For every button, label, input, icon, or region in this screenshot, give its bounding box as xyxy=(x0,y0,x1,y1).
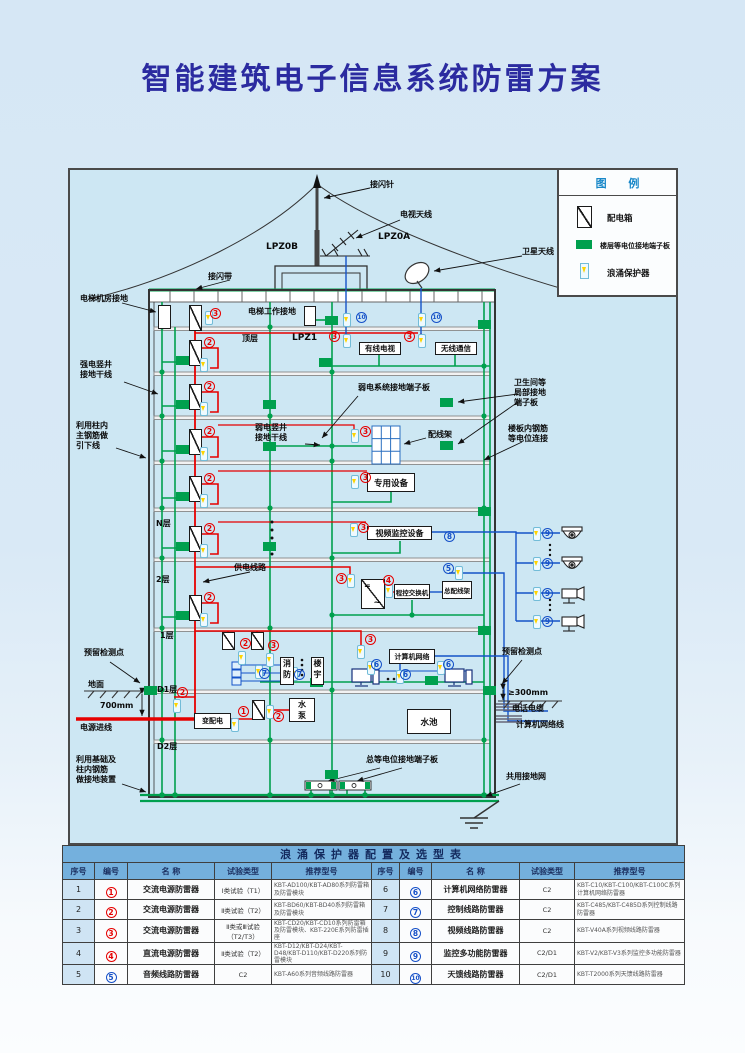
tv-antenna-icon xyxy=(320,230,370,256)
cell-num: 2 xyxy=(95,900,128,920)
label-ground-surface: 地面 xyxy=(88,680,104,690)
lpz-protection-curves xyxy=(90,184,588,299)
legend-item-label: 配电箱 xyxy=(607,212,633,224)
col-header: 序号 xyxy=(63,863,95,880)
label-elevator-work-ground: 电梯工作接地 xyxy=(248,307,296,317)
box-video-surveillance: 视频监控设备 xyxy=(367,526,432,540)
cell-no: 2 xyxy=(63,900,95,920)
cell-no: 8 xyxy=(372,920,400,943)
label-floor-d1: D1层 xyxy=(157,685,177,695)
label-weak-shaft: 弱电竖井 接地干线 xyxy=(255,423,287,443)
equipotential-board-icon xyxy=(263,542,276,551)
cell-name: 直流电源防雷器 xyxy=(128,942,215,965)
surge-protector-icon xyxy=(200,494,208,508)
equipotential-board-icon xyxy=(176,356,189,365)
label-foundation-ground: 利用基础及 柱内钢筋 做接地装置 xyxy=(76,755,116,785)
spd-number-badge: 2 xyxy=(273,711,284,722)
spd-selection-table: 浪涌保护器配置及选型表 序号 编号 名 称 试验类型 推荐型号 序号 编号 名 … xyxy=(62,845,685,985)
surge-protector-icon xyxy=(200,358,208,372)
box-camera-icon xyxy=(562,615,584,631)
label-floor-n: N层 xyxy=(156,519,171,529)
label-lpz0a: LPZ0A xyxy=(378,232,410,243)
col-header: 试验类型 xyxy=(520,863,575,880)
cell-type: C2 xyxy=(215,965,272,985)
col-header: 推荐型号 xyxy=(575,863,685,880)
table-title-row: 浪涌保护器配置及选型表 xyxy=(63,846,685,863)
spd-number-badge: 2 xyxy=(240,638,251,649)
cell-no: 7 xyxy=(372,900,400,920)
air-termination-belt xyxy=(149,290,495,302)
spd-number-badge: 10 xyxy=(431,312,442,323)
test-point-board-icon xyxy=(483,686,496,695)
power-lines xyxy=(76,320,421,719)
box-water-pump: 水 泵 xyxy=(289,698,315,722)
spd-number-badge: 7 xyxy=(259,668,270,679)
spd-number-badge: 9 xyxy=(542,588,553,599)
cell-num: 1 xyxy=(95,880,128,900)
cell-type: Ⅱ类试验（T2） xyxy=(215,942,272,965)
spd-number-badge: 3 xyxy=(336,573,347,584)
cell-name: 天馈线路防雷器 xyxy=(432,965,520,985)
cell-model: KBT-T2000系列天馈线路防雷器 xyxy=(575,965,685,985)
cell-type: C2 xyxy=(520,880,575,900)
table-title: 浪涌保护器配置及选型表 xyxy=(63,846,685,863)
label-top-floor: 顶层 xyxy=(242,334,258,344)
cell-model: KBT-V2/KBT-V3系列监控多功能防雷器 xyxy=(575,942,685,965)
equipotential-board-icon xyxy=(263,442,276,451)
cell-no: 4 xyxy=(63,942,95,965)
label-network-cable: 计算机网络线 xyxy=(516,720,564,730)
equipotential-board-icon xyxy=(176,445,189,454)
label-dim-700: 700mm xyxy=(100,701,133,711)
elevator-work-ground-box xyxy=(304,306,316,326)
col-header: 名 称 xyxy=(128,863,215,880)
label-common-ground-net: 共用接地网 xyxy=(506,772,546,782)
cell-num: 8 xyxy=(400,920,432,943)
label-lpz1: LPZ1 xyxy=(292,333,317,344)
equipotential-board-icon xyxy=(263,400,276,409)
cell-num: 5 xyxy=(95,965,128,985)
legend-item-label: 楼层等电位接地端子板 xyxy=(600,241,670,251)
cell-name: 控制线路防雷器 xyxy=(432,900,520,920)
surge-protector-icon xyxy=(343,313,351,327)
surge-protector-icon xyxy=(418,313,426,327)
cell-no: 10 xyxy=(372,965,400,985)
table-row: 5 5 音频线路防雷器 C2 KBT-A60系列音频线路防雷器 10 10 天馈… xyxy=(63,965,685,985)
cell-type: C2 xyxy=(520,900,575,920)
label-slab-rebar: 楼板内钢筋 等电位连接 xyxy=(508,424,548,444)
cell-type: Ⅰ类试验（T1） xyxy=(215,880,272,900)
equipotential-board-icon xyxy=(478,626,491,635)
label-reserved-test-right: 预留检测点 xyxy=(502,647,542,657)
surge-protector-icon xyxy=(266,653,274,667)
circled-number: 2 xyxy=(106,907,117,918)
spd-number-badge: 2 xyxy=(204,337,215,348)
equipotential-board-icon xyxy=(176,492,189,501)
cell-model: KBT-CD20/KBT-CD10系列防雷箱及防雷模块、KBT-220E系列防雷… xyxy=(272,920,372,943)
dome-camera-icon xyxy=(562,527,582,539)
spd-number-badge: 2 xyxy=(204,426,215,437)
page-title: 智能建筑电子信息系统防雷方案 xyxy=(0,54,745,98)
circled-number: 4 xyxy=(106,951,117,962)
earth-symbol xyxy=(460,801,499,828)
box-transformer: 变配电 xyxy=(194,713,231,729)
circled-number: 1 xyxy=(106,887,117,898)
surge-protector-icon xyxy=(351,475,359,489)
circled-number: 10 xyxy=(410,973,421,984)
box-special-equipment: 专用设备 xyxy=(367,473,415,492)
cell-no: 5 xyxy=(63,965,95,985)
penthouse xyxy=(275,266,367,290)
rectifier-converter-icon: = ~ xyxy=(361,579,385,609)
spd-number-badge: 2 xyxy=(204,473,215,484)
cell-model: KBT-AD100/KBT-AD80系列防雷箱及防雷模块 xyxy=(272,880,372,900)
surge-protector-icon xyxy=(533,557,541,571)
cell-name: 监控多功能防雷器 xyxy=(432,942,520,965)
label-lpz0b: LPZ0B xyxy=(266,242,298,253)
cell-num: 6 xyxy=(400,880,432,900)
spd-number-badge: 6 xyxy=(443,659,454,670)
cell-name: 计算机网络防雷器 xyxy=(432,880,520,900)
spd-number-badge: 3 xyxy=(210,308,221,319)
surge-protector-icon xyxy=(200,613,208,627)
equipotential-board-icon xyxy=(176,400,189,409)
label-tv-antenna: 电视天线 xyxy=(400,210,432,220)
label-dim-300: ≥300mm xyxy=(508,688,548,698)
converter-ac-glyph: ~ xyxy=(373,598,381,608)
equipotential-board-icon xyxy=(576,240,592,249)
col-header: 推荐型号 xyxy=(272,863,372,880)
table-row: 2 2 交流电源防雷器 Ⅱ类试验（T2） KBT-BD60/KBT-BD40系列… xyxy=(63,900,685,920)
diagram-panel: 图 例 配电箱 楼层等电位接地端子板 浪涌保护器 接闪针 电视天线 LPZ0A … xyxy=(68,168,678,845)
equipotential-board-icon xyxy=(478,320,491,329)
cell-model: KBT-BD60/KBT-BD40系列防雷箱及防雷模块 xyxy=(272,900,372,920)
cell-no: 1 xyxy=(63,880,95,900)
label-column-rebar: 利用柱内 主钢筋做 引下线 xyxy=(76,421,108,451)
cell-num: 3 xyxy=(95,920,128,943)
table-row: 1 1 交流电源防雷器 Ⅰ类试验（T1） KBT-AD100/KBT-AD80系… xyxy=(63,880,685,900)
circled-number: 6 xyxy=(410,887,421,898)
label-elevator-room-ground: 电梯机房接地 xyxy=(80,294,128,304)
surge-protector-icon xyxy=(200,447,208,461)
label-air-belt: 接闪带 xyxy=(208,272,232,282)
spd-number-badge: 3 xyxy=(365,634,376,645)
cell-name: 交流电源防雷器 xyxy=(128,920,215,943)
spd-number-badge: 3 xyxy=(268,640,279,651)
wiring-frame-icon xyxy=(372,426,400,464)
label-floor-d2: D2层 xyxy=(157,742,177,752)
surge-protector-icon xyxy=(418,334,426,348)
surge-protector-icon xyxy=(455,566,463,580)
spd-number-badge: 3 xyxy=(404,331,415,342)
cell-no: 3 xyxy=(63,920,95,943)
cell-type: C2/D1 xyxy=(520,942,575,965)
circled-number: 5 xyxy=(106,972,117,983)
cell-no: 9 xyxy=(372,942,400,965)
label-reserved-test-left: 预留检测点 xyxy=(84,648,124,658)
circled-number: 8 xyxy=(410,928,421,939)
converter-dc-glyph: = xyxy=(364,581,371,590)
distribution-box-icon xyxy=(577,206,592,228)
label-floor-2: 2层 xyxy=(156,575,170,585)
cell-name: 视频线路防雷器 xyxy=(432,920,520,943)
computer-icon xyxy=(445,669,472,686)
cell-no: 6 xyxy=(372,880,400,900)
surge-protector-icon xyxy=(343,334,351,348)
circled-number: 3 xyxy=(106,928,117,939)
cell-type: Ⅱ类或Ⅲ试验（T2/T3） xyxy=(215,920,272,943)
equipotential-board-icon xyxy=(325,770,338,779)
spd-number-badge: 1 xyxy=(238,706,249,717)
surge-protector-icon xyxy=(357,645,365,659)
legend: 图 例 配电箱 楼层等电位接地端子板 浪涌保护器 xyxy=(557,170,678,297)
cell-num: 7 xyxy=(400,900,432,920)
spd-number-badge: 2 xyxy=(204,381,215,392)
cell-type: C2 xyxy=(520,920,575,943)
equipotential-board-icon xyxy=(319,358,332,367)
col-header: 试验类型 xyxy=(215,863,272,880)
toilet-local-board-icon xyxy=(440,441,453,450)
air-terminal-rod xyxy=(313,174,321,266)
test-point-board-icon xyxy=(144,686,157,695)
spd-number-badge: 6 xyxy=(400,669,411,680)
cell-num: 4 xyxy=(95,942,128,965)
label-wiring-frame: 配线架 xyxy=(428,430,452,440)
equipotential-board-icon xyxy=(176,611,189,620)
distribution-box-icon xyxy=(251,632,264,650)
surge-protector-icon xyxy=(351,429,359,443)
spd-number-badge: 9 xyxy=(542,528,553,539)
cell-model: KBT-C485/KBT-C485D系列控制线路防雷器 xyxy=(575,900,685,920)
distribution-box-icon xyxy=(222,632,235,650)
box-computer-network: 计算机网络 xyxy=(389,649,435,664)
col-header: 名 称 xyxy=(432,863,520,880)
surge-protector-icon xyxy=(200,402,208,416)
label-weak-system-board: 弱电系统接地端子板 xyxy=(358,383,430,393)
cell-model: KBT-A60系列音频线路防雷器 xyxy=(272,965,372,985)
cell-model: KBT-V40A系列视频线路防雷器 xyxy=(575,920,685,943)
main-equipotential-bars xyxy=(305,781,371,790)
surge-protector-icon xyxy=(347,574,355,588)
box-pbx: 程控交换机 xyxy=(394,584,430,599)
col-header: 编号 xyxy=(400,863,432,880)
spd-number-badge: 4 xyxy=(383,575,394,586)
spd-number-badge: 9 xyxy=(542,558,553,569)
label-air-terminal: 接闪针 xyxy=(370,180,394,190)
surge-protector-icon xyxy=(533,615,541,629)
cell-model: KBT-D12/KBT-D24/KBT-D48/KBT-D110/KBT-D22… xyxy=(272,942,372,965)
surge-protector-icon xyxy=(350,523,358,537)
spd-number-badge: 2 xyxy=(204,592,215,603)
page: { "page": { "title": "智能建筑电子信息系统防雷方案" },… xyxy=(0,0,745,1053)
label-power-supply-line: 供电线路 xyxy=(234,563,266,573)
surge-protector-icon xyxy=(238,651,246,665)
distribution-box-icon xyxy=(252,700,265,720)
spd-number-badge: 3 xyxy=(360,472,371,483)
cell-type: C2/D1 xyxy=(520,965,575,985)
toilet-local-board-icon xyxy=(440,398,453,407)
surge-protector-icon xyxy=(533,587,541,601)
surge-protector-icon xyxy=(385,584,393,598)
label-main-equipotential: 总等电位接地端子板 xyxy=(366,755,438,765)
label-satellite-antenna: 卫星天线 xyxy=(522,247,554,257)
spd-number-badge: 2 xyxy=(177,687,188,698)
col-header: 编号 xyxy=(95,863,128,880)
distribution-box-icon xyxy=(189,305,202,331)
spd-number-badge: 3 xyxy=(329,331,340,342)
table-row: 4 4 直流电源防雷器 Ⅱ类试验（T2） KBT-D12/KBT-D24/KBT… xyxy=(63,942,685,965)
cell-num: 10 xyxy=(400,965,432,985)
spd-number-badge: 8 xyxy=(444,531,455,542)
circled-number: 7 xyxy=(410,907,421,918)
surge-protector-icon xyxy=(173,699,181,713)
equipotential-board-icon xyxy=(325,316,338,325)
cell-num: 9 xyxy=(400,942,432,965)
equipotential-board-icon xyxy=(425,676,438,685)
legend-item-label: 浪涌保护器 xyxy=(607,267,650,279)
dome-camera-icon xyxy=(562,557,582,569)
box-building-automation: 楼 宇 xyxy=(311,657,324,685)
label-floor-1: 1层 xyxy=(160,631,174,641)
equipotential-board-icon xyxy=(478,507,491,516)
spd-number-badge: 2 xyxy=(204,523,215,534)
table-row: 3 3 交流电源防雷器 Ⅱ类或Ⅲ试验（T2/T3） KBT-CD20/KBT-C… xyxy=(63,920,685,943)
surge-protector-icon xyxy=(231,718,239,732)
circled-number: 9 xyxy=(410,951,421,962)
cell-name: 交流电源防雷器 xyxy=(128,900,215,920)
label-power-incoming: 电源进线 xyxy=(80,723,112,733)
cell-name: 音频线路防雷器 xyxy=(128,965,215,985)
leader-arrows xyxy=(110,188,522,796)
label-toilet-board: 卫生间等 局部接地 端子板 xyxy=(514,378,546,408)
box-water-pool: 水池 xyxy=(407,709,451,734)
surge-protector-icon xyxy=(580,263,589,279)
spd-number-badge: 10 xyxy=(356,312,367,323)
elevator-room-ground-box xyxy=(158,305,171,329)
satellite-dish-icon xyxy=(401,258,433,288)
spd-number-badge: 9 xyxy=(542,616,553,627)
surge-protector-icon xyxy=(200,544,208,558)
spd-number-badge: 6 xyxy=(371,659,382,670)
legend-title: 图 例 xyxy=(559,170,676,196)
box-main-distribution-frame: 总配线架 xyxy=(442,581,472,599)
box-cable-tv: 有线电视 xyxy=(359,342,401,355)
equipotential-board-icon xyxy=(176,542,189,551)
spd-number-badge: 5 xyxy=(443,563,454,574)
cell-name: 交流电源防雷器 xyxy=(128,880,215,900)
box-wireless-comm: 无线通信 xyxy=(435,342,477,355)
box-fire-protection: 消 防 xyxy=(280,657,294,685)
cell-type: Ⅱ类试验（T2） xyxy=(215,900,272,920)
label-telephone-cable: 电话电缆 xyxy=(512,704,544,714)
spd-number-badge: 7 xyxy=(294,669,305,680)
cell-model: KBT-C10/KBT-C100/KBT-C100C系列计算机网络防雷器 xyxy=(575,880,685,900)
box-camera-icon xyxy=(562,587,584,603)
spd-number-badge: 3 xyxy=(358,522,369,533)
table-header-row: 序号 编号 名 称 试验类型 推荐型号 序号 编号 名 称 试验类型 推荐型号 xyxy=(63,863,685,880)
spd-number-badge: 3 xyxy=(360,426,371,437)
surge-protector-icon xyxy=(533,527,541,541)
label-strong-shaft: 强电竖井 接地干线 xyxy=(80,360,112,380)
col-header: 序号 xyxy=(372,863,400,880)
